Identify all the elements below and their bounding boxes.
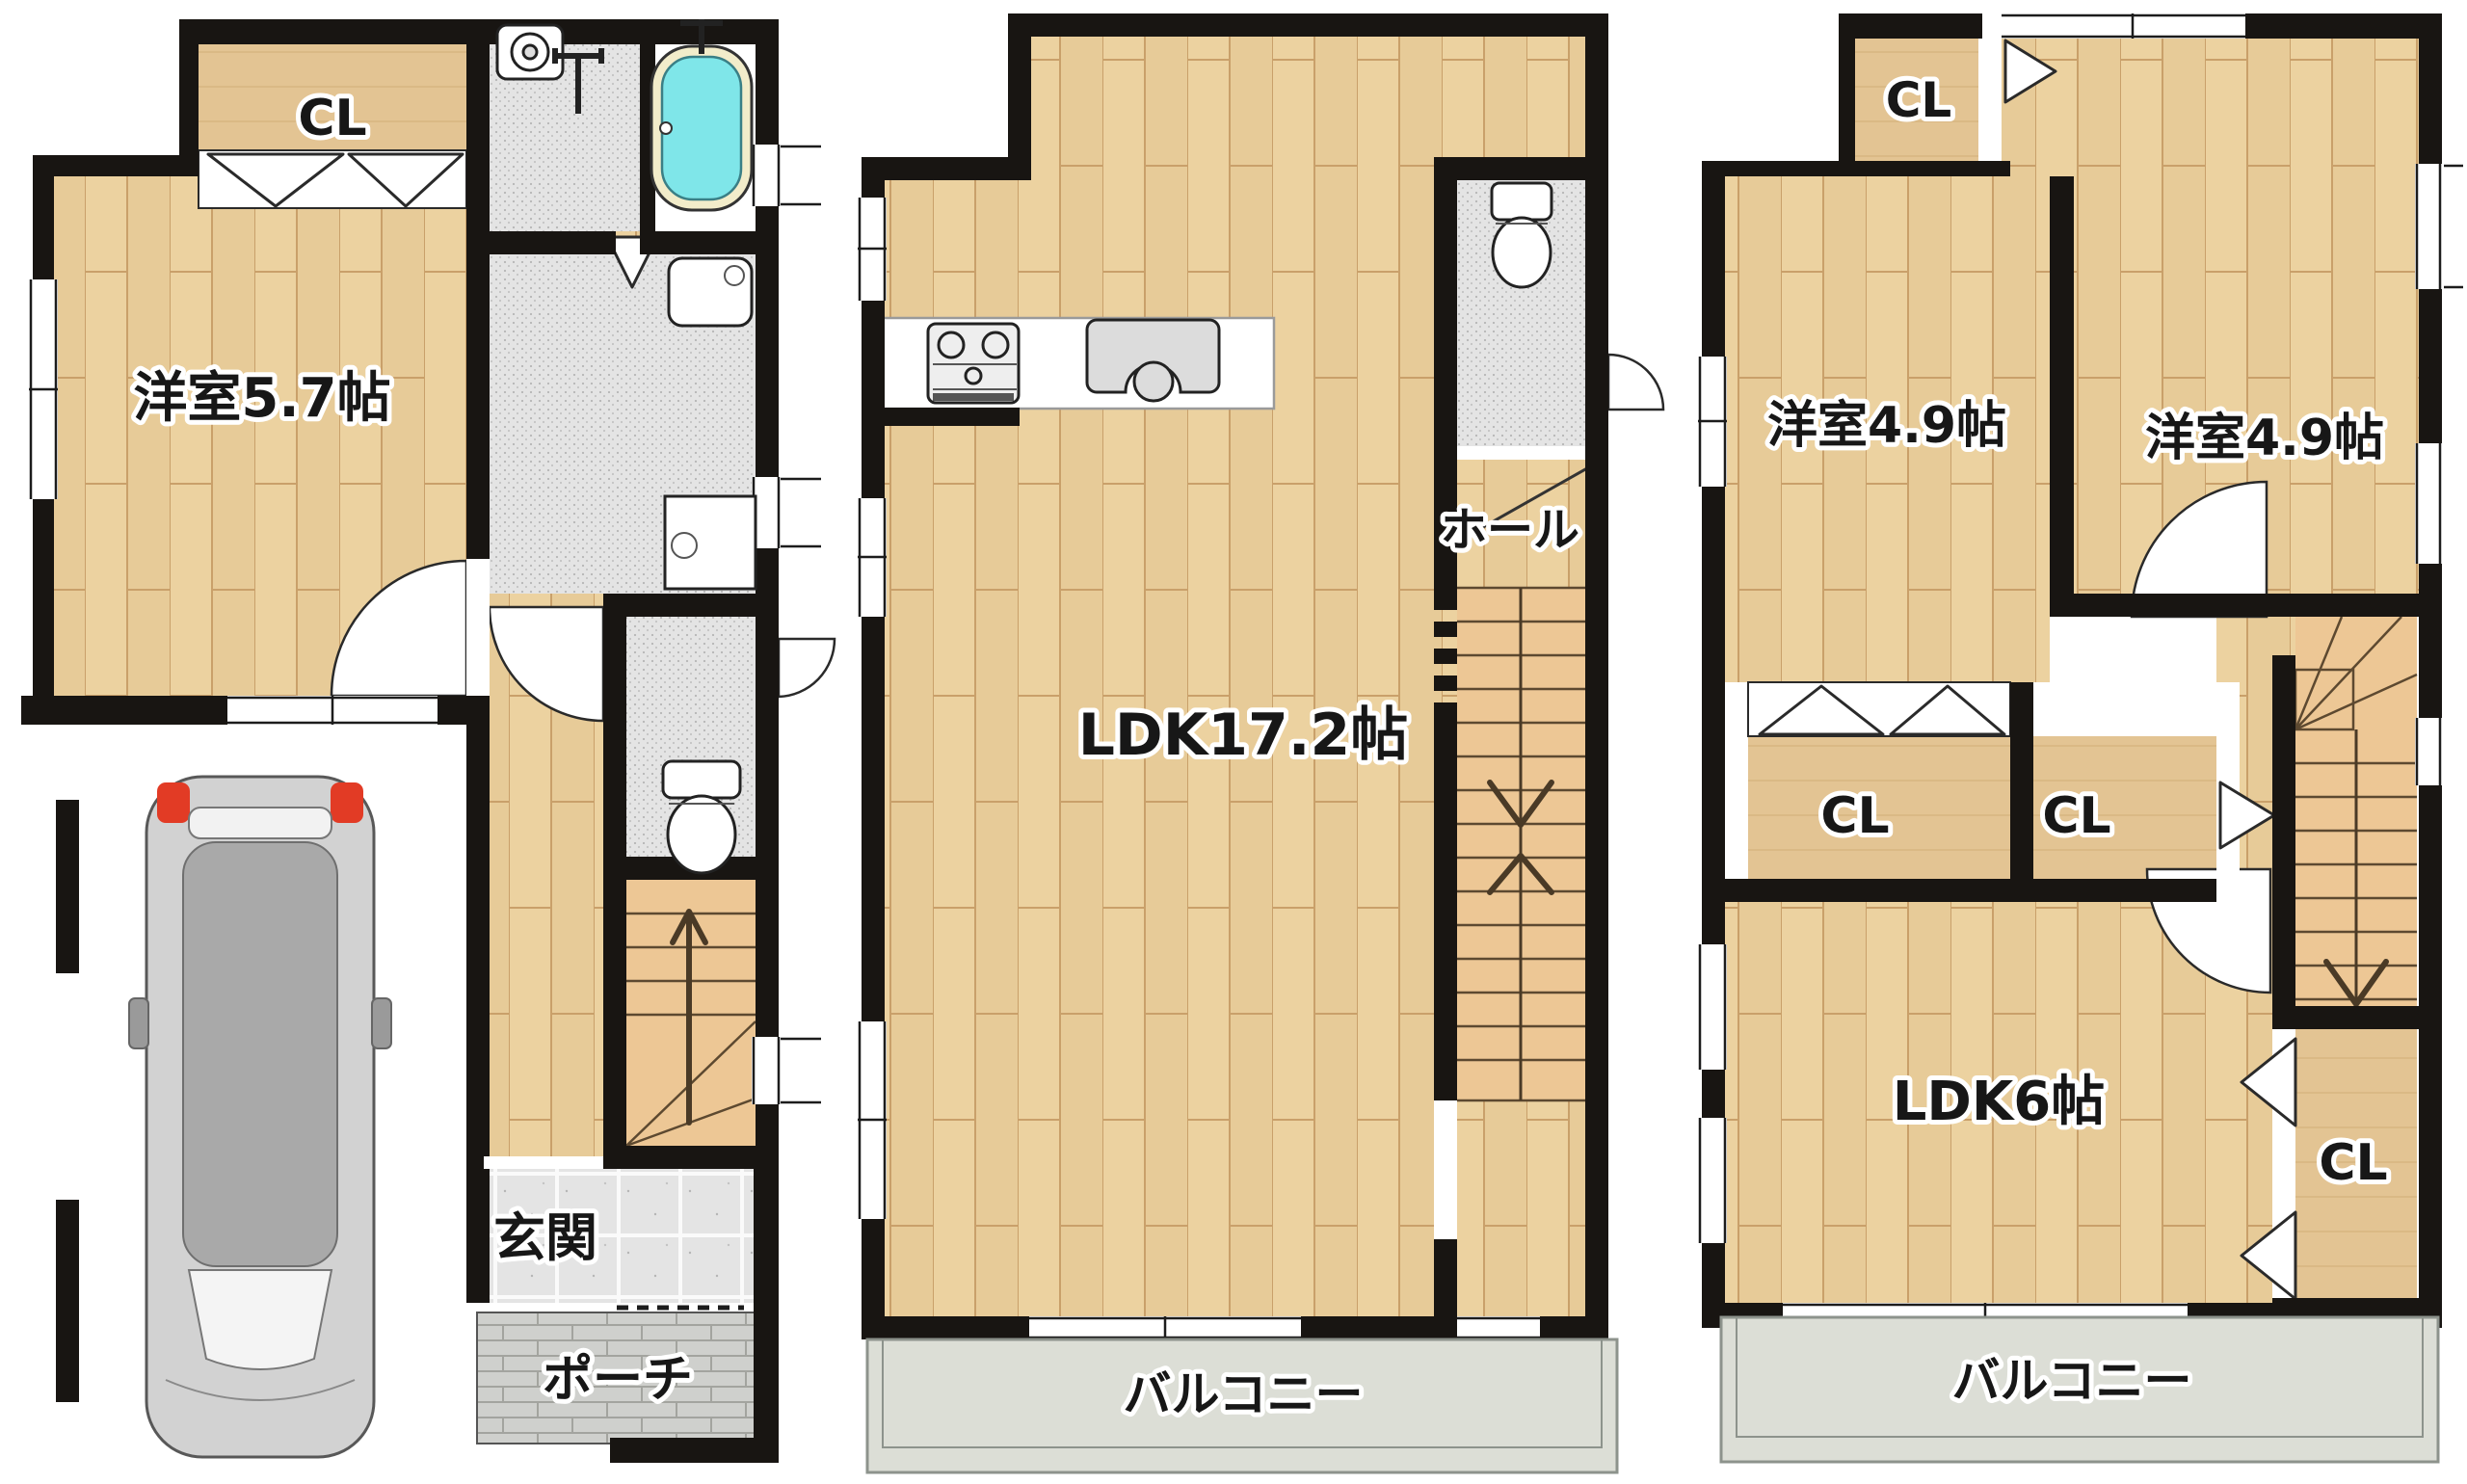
window xyxy=(2415,718,2444,785)
window xyxy=(858,1021,887,1219)
window xyxy=(2002,13,2245,39)
closet-1f-label: CL xyxy=(298,90,366,147)
bedroom-1f-label: 洋室5.7帖 xyxy=(133,367,390,430)
closet-right-label: CL xyxy=(2319,1134,2387,1192)
floor-plan-drawing: CL 洋室5.7帖 玄関 ポーチ xyxy=(0,0,2467,1484)
stairs-1f xyxy=(626,880,756,1146)
window xyxy=(1457,1316,1540,1339)
window xyxy=(752,1037,821,1104)
ldk-2f-label: LDK17.2帖 xyxy=(1078,702,1409,769)
balcony-2f-label: バルコニー xyxy=(1124,1366,1364,1422)
closet-folding-doors-3f xyxy=(1748,682,2010,736)
window xyxy=(29,279,58,499)
floor3-plan: CL 洋室4.9帖 洋室4.9帖 CL CL LDK6帖 CL バルコニー xyxy=(1698,13,2463,1462)
stove-icon xyxy=(928,324,1019,403)
kitchen-sink-icon xyxy=(1087,320,1219,401)
floor2-plan: LDK17.2帖 ホール バルコニー xyxy=(858,0,1663,1472)
stairs-3f xyxy=(2295,617,2417,1015)
car-mirror xyxy=(372,998,391,1048)
ldk-3f-label: LDK6帖 xyxy=(1893,1071,2106,1133)
window xyxy=(2415,443,2444,564)
stairs-2f xyxy=(1457,588,1585,1100)
door-opening xyxy=(1434,1100,1457,1239)
closet-center-label: CL xyxy=(2042,787,2110,845)
balcony-3f-label: バルコニー xyxy=(1952,1353,2192,1409)
window xyxy=(2415,164,2463,289)
hall-label: ホール xyxy=(1441,503,1579,557)
closet-top-label: CL xyxy=(1886,72,1952,128)
window xyxy=(1029,1316,1301,1339)
window xyxy=(752,477,821,548)
exterior-door-swing-arc xyxy=(779,639,835,697)
porch-label: ポーチ xyxy=(543,1351,693,1409)
door-opening xyxy=(466,559,490,696)
bedroom-left-label: 洋室4.9帖 xyxy=(1767,397,2006,455)
kitchen-counter xyxy=(880,318,1274,409)
door-opening xyxy=(1457,446,1585,460)
floor1-plan: CL 洋室5.7帖 玄関 ポーチ xyxy=(21,19,835,1463)
window xyxy=(1698,1118,1727,1243)
car-taillight xyxy=(331,782,363,823)
window xyxy=(752,145,821,206)
toilet-icon xyxy=(663,761,740,873)
car-taillight xyxy=(157,782,190,823)
door-opening xyxy=(1978,26,2002,176)
floor-plan-page: CL 洋室5.7帖 玄関 ポーチ xyxy=(0,0,2467,1484)
closet-folding-doors-1f xyxy=(199,150,466,208)
vanity-sink-icon xyxy=(669,258,752,326)
door-swing-arc xyxy=(1608,355,1663,410)
wash-counter-icon xyxy=(665,496,756,589)
window xyxy=(227,696,438,725)
window xyxy=(1698,357,1727,487)
entrance-label: 玄関 xyxy=(493,1207,597,1268)
window xyxy=(858,198,887,301)
bedroom-right-label: 洋室4.9帖 xyxy=(2145,410,2384,467)
car-mirror xyxy=(129,998,148,1048)
entrance-step xyxy=(484,1156,603,1169)
toilet-icon xyxy=(1492,183,1552,287)
closet-left-label: CL xyxy=(1820,787,1889,845)
window xyxy=(858,498,887,617)
car-icon xyxy=(129,777,391,1457)
window xyxy=(1698,944,1727,1070)
